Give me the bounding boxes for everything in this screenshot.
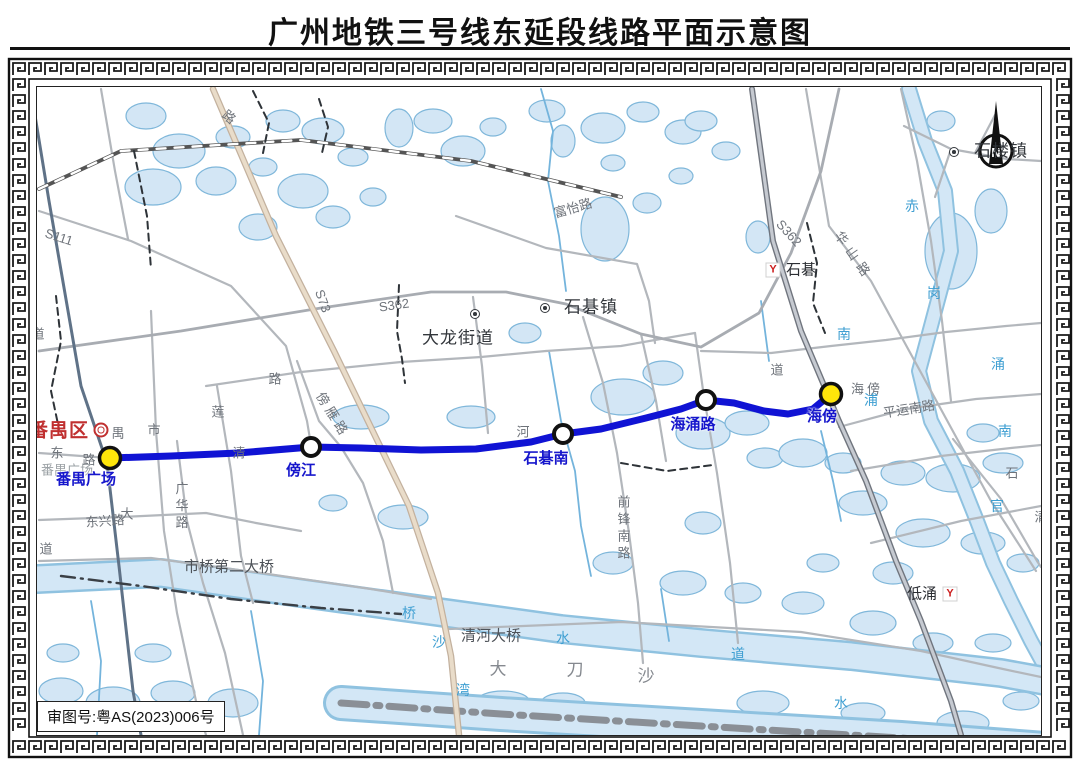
station-label: 傍江: [286, 463, 316, 478]
town-marker: [470, 306, 484, 322]
road-label: S362: [378, 296, 410, 313]
road: [101, 89, 128, 239]
approval-box: 审图号:粤AS(2023)006号: [37, 701, 225, 732]
water-body: [414, 109, 452, 133]
station-label: 海傍: [807, 409, 837, 424]
road-label: 道: [770, 364, 783, 377]
water-label: 道: [731, 647, 745, 661]
road: [583, 317, 643, 663]
water-body: [601, 155, 625, 171]
station-marker: [100, 448, 121, 469]
water-body: [633, 193, 661, 213]
gz-metro-logo: Y: [943, 587, 958, 602]
map-page: { "title": "广州地铁三号线东延段线路平面示意图", "approva…: [0, 0, 1080, 764]
water-body: [480, 118, 506, 136]
station-marker: [302, 438, 320, 456]
water-label: 岗: [927, 286, 941, 300]
water-body: [316, 206, 350, 228]
water-body: [1003, 692, 1039, 710]
island-label: 大: [490, 661, 507, 678]
water-label: 赤: [905, 199, 919, 213]
water-body: [669, 168, 693, 184]
boundary-line: [51, 296, 61, 429]
metro-station-name: 石碁: [786, 263, 816, 278]
water-label: 涌: [991, 357, 1005, 371]
town-ring-icon: [949, 147, 959, 157]
water-label: 桥: [402, 606, 416, 620]
water-body: [896, 519, 950, 547]
station-label: 石碁南: [523, 451, 568, 466]
bridge-label: 清河大桥: [461, 629, 521, 644]
water-body: [712, 142, 740, 160]
station-marker: [821, 384, 842, 405]
road-label: 东: [50, 447, 63, 460]
water-body: [266, 110, 300, 132]
water-body: [725, 411, 769, 435]
water-body: [581, 113, 625, 143]
road: [39, 513, 301, 531]
road-label: 禺: [111, 427, 124, 440]
town-label: 石碁镇: [564, 299, 618, 316]
water-body: [627, 102, 659, 122]
road: [39, 211, 311, 445]
road-label: 广华路: [175, 482, 188, 533]
station-label: 番禺广场: [56, 472, 116, 487]
water-body: [975, 189, 1007, 233]
town-marker: [949, 144, 963, 160]
water-label: 沙: [432, 635, 446, 649]
water-body: [779, 439, 827, 467]
road: [701, 323, 1041, 353]
road-label: 石: [1005, 467, 1018, 480]
district-ring-icon: [94, 423, 109, 438]
road-label: 河: [516, 426, 529, 439]
water-body: [967, 424, 999, 442]
water-body: [153, 134, 205, 168]
stream: [251, 611, 263, 735]
water-body: [591, 379, 655, 415]
water-body: [278, 174, 328, 208]
town-ring-icon: [470, 309, 480, 319]
town-marker: [540, 300, 554, 316]
water-body: [927, 111, 955, 131]
town-label: 大龙街道: [422, 330, 494, 347]
road-label: 道: [36, 328, 45, 341]
water-body: [338, 148, 368, 166]
district-marker: [94, 423, 109, 442]
road-label: 东兴路: [85, 513, 125, 529]
road-label: 前锋南路: [617, 495, 630, 563]
water-body: [135, 644, 171, 662]
water-body: [975, 634, 1011, 652]
water-body: [685, 111, 717, 131]
approval-text: 审图号:粤AS(2023)006号: [47, 709, 215, 726]
water-body: [378, 505, 428, 529]
water-body: [850, 611, 896, 635]
water-body: [196, 167, 236, 195]
water-body: [807, 554, 839, 572]
water-body: [47, 644, 79, 662]
road-label: 大: [120, 508, 133, 521]
road-label: 莲: [211, 406, 224, 419]
water-label: 水: [556, 631, 570, 645]
water-body: [685, 512, 721, 534]
water-body: [746, 221, 770, 253]
water-label: 水: [834, 696, 848, 710]
station-marker: [554, 425, 572, 443]
water-body: [509, 323, 541, 343]
road-label: 市: [147, 424, 160, 437]
water-label: 官: [990, 499, 1004, 513]
river: [909, 89, 1041, 663]
boundary-line: [621, 463, 713, 471]
station-label: 海涌路: [670, 417, 715, 432]
island-label: 刀: [567, 662, 584, 679]
gz-metro-logo: Y: [766, 263, 781, 278]
district-label: 番禺区: [36, 422, 89, 441]
water-label: 南: [837, 327, 851, 341]
water-label: 湾: [456, 683, 470, 697]
island-label: 沙: [638, 668, 655, 685]
water-body: [126, 103, 166, 129]
water-label: 浦: [864, 393, 878, 407]
water-body: [725, 583, 761, 603]
town-label: 石楼镇: [974, 143, 1028, 160]
road-label: 清: [1034, 511, 1042, 524]
road-label: 清: [232, 447, 245, 460]
water-body: [660, 571, 706, 595]
station-marker: [697, 391, 715, 409]
water-label: 南: [998, 424, 1012, 438]
metro-station-name: 低涌: [907, 587, 937, 602]
stream: [821, 431, 841, 521]
water-body: [360, 188, 386, 206]
water-body: [249, 158, 277, 176]
water-body: [385, 109, 413, 147]
road: [206, 351, 546, 386]
water-body: [319, 495, 347, 511]
bridge-label: 市桥第二大桥: [184, 560, 274, 575]
road-label: 路: [268, 373, 281, 386]
water-body: [551, 125, 575, 157]
river: [909, 89, 1041, 663]
road-label: 道: [39, 543, 52, 556]
water-body: [125, 169, 181, 205]
town-ring-icon: [540, 303, 550, 313]
water-body: [782, 592, 824, 614]
water-body: [747, 448, 783, 468]
map-canvas: N S111S362S362S73富怡路华山路平运南路傍雁路广华路前锋南路东兴路…: [36, 86, 1042, 736]
